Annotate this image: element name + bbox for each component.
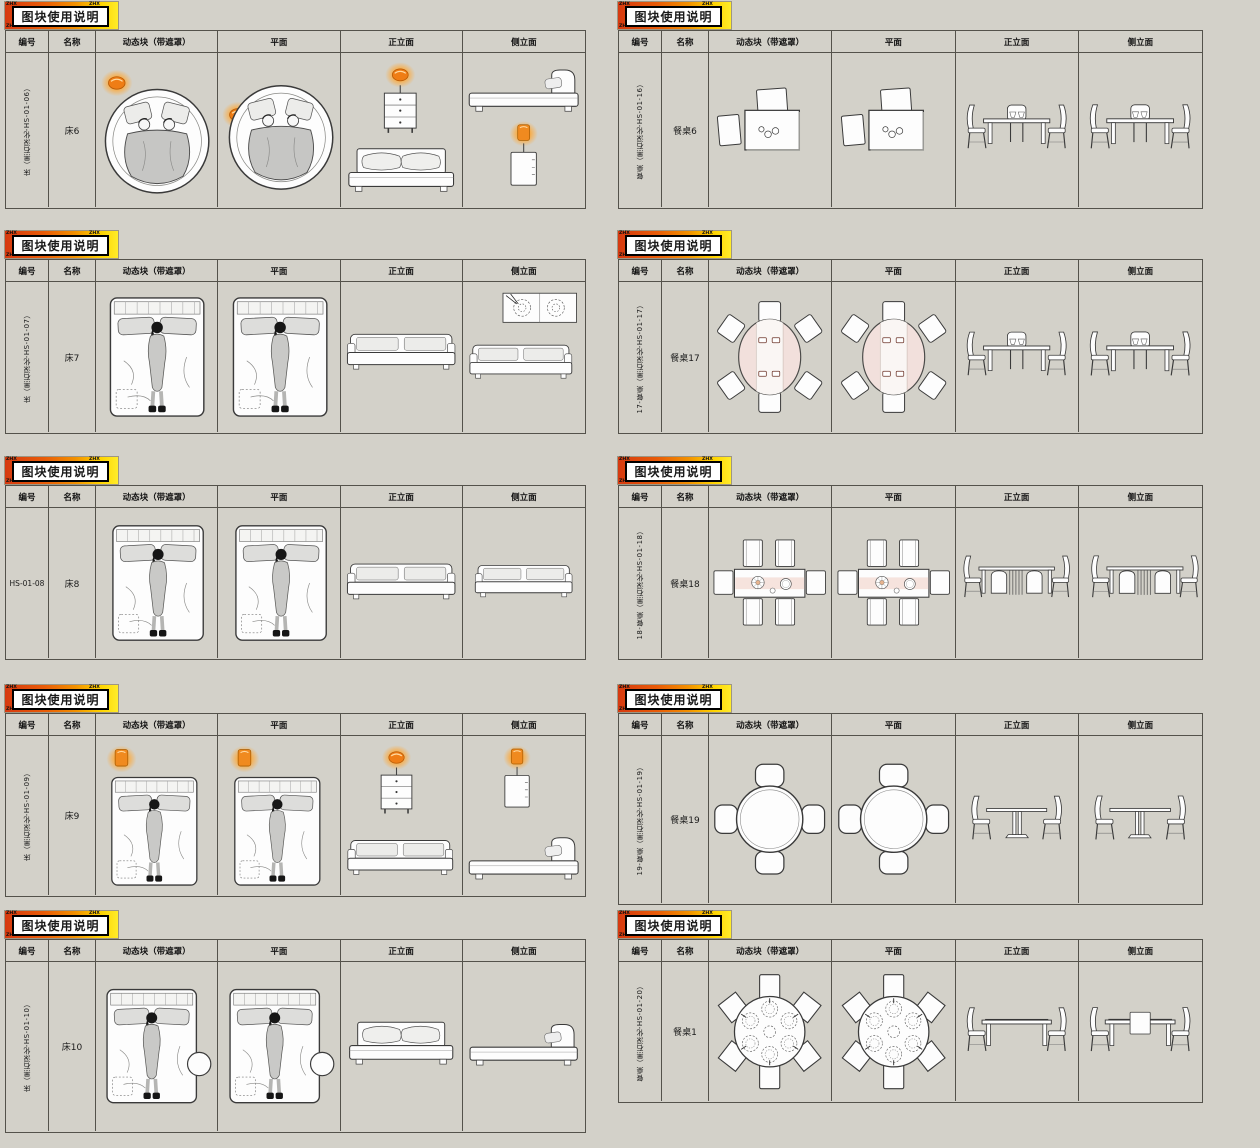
code-cell: HS-01-08: [6, 508, 49, 658]
col-header-code: 编号: [6, 714, 49, 735]
code-cell: 床（黑石深化-HS-01-06）: [6, 53, 49, 207]
section-banner: ZHXZHXZHXZHX 图块使用说明: [618, 2, 731, 29]
table17-dynamic-block-drawing: [709, 282, 832, 432]
bed7-plan-drawing: [218, 282, 340, 432]
code-cell: 餐桌（黑石深化-HS-01-20）: [619, 962, 662, 1101]
code-cell: 18-餐桌（黑石深化-HS-01-18）: [619, 508, 662, 658]
table6-front-elevation-drawing: [956, 53, 1079, 207]
col-header-code: 编号: [619, 260, 662, 281]
name-cell: 餐桌6: [662, 53, 709, 207]
col-header-side-elevation: 侧立面: [1079, 260, 1202, 281]
bed8-plan-drawing: [218, 508, 340, 658]
bed6-front-elevation-drawing: [341, 53, 463, 207]
lamp-icon: [504, 746, 531, 808]
bed10-plan-drawing: [218, 962, 340, 1131]
col-header-code: 编号: [6, 940, 49, 961]
col-header-plan: 平面: [218, 940, 340, 961]
col-header-code: 编号: [619, 940, 662, 961]
col-header-name: 名称: [662, 940, 709, 961]
nightstand-lamp-icon: [381, 745, 412, 813]
table19-plan-drawing: [832, 736, 955, 903]
col-header-front-elevation: 正立面: [956, 260, 1079, 281]
section-banner: ZHXZHXZHXZHX 图块使用说明: [5, 457, 118, 484]
panel-table19: ZHXZHXZHXZHX 图块使用说明 编号 名称 动态块（带遮罩） 平面 正立…: [618, 685, 1203, 905]
col-header-code: 编号: [619, 486, 662, 507]
col-header-name: 名称: [49, 260, 96, 281]
table1-plan-drawing: [832, 962, 955, 1101]
col-header-side-elevation: 侧立面: [463, 486, 585, 507]
table6-side-elevation-drawing: [1079, 53, 1202, 207]
code-cell: 餐桌（黑石深化-HS-01-16）: [619, 53, 662, 207]
col-header-front-elevation: 正立面: [341, 486, 463, 507]
col-header-name: 名称: [662, 260, 709, 281]
section-title: 图块使用说明: [625, 6, 722, 27]
name-cell: 床9: [49, 736, 96, 895]
name-cell: 餐桌18: [662, 508, 709, 658]
col-header-plan: 平面: [218, 714, 340, 735]
table18-plan-drawing: [832, 508, 955, 658]
panel-table6: ZHXZHXZHXZHX 图块使用说明 编号 名称 动态块（带遮罩） 平面 正立…: [618, 2, 1203, 209]
section-title: 图块使用说明: [12, 6, 109, 27]
section-banner: ZHXZHXZHXZHX 图块使用说明: [5, 2, 118, 29]
code-cell: 17-餐桌（黑石深化-HS-01-17）: [619, 282, 662, 432]
lamp-icon: [107, 746, 137, 773]
name-cell: 床7: [49, 282, 96, 432]
lamp-icon: [229, 746, 259, 773]
col-header-front-elevation: 正立面: [956, 714, 1079, 735]
panel-bed6: ZHXZHXZHXZHX 图块使用说明 编号 名称 动态块（带遮罩） 平面 正立…: [5, 2, 586, 209]
bed6-plan-drawing: [218, 53, 340, 207]
table6-dynamic-block-drawing: [709, 53, 832, 207]
section-title: 图块使用说明: [625, 915, 722, 936]
col-header-dynamic-block: 动态块（带遮罩）: [709, 486, 832, 507]
lamp-icon: [101, 70, 132, 97]
col-header-plan: 平面: [218, 486, 340, 507]
col-header-side-elevation: 侧立面: [1079, 940, 1202, 961]
col-header-dynamic-block: 动态块（带遮罩）: [96, 940, 218, 961]
section-title: 图块使用说明: [625, 461, 722, 482]
col-header-name: 名称: [662, 714, 709, 735]
col-header-plan: 平面: [832, 260, 955, 281]
col-header-side-elevation: 侧立面: [463, 940, 585, 961]
bed10-side-elevation-drawing: [463, 962, 585, 1131]
panel-bed9: ZHXZHXZHXZHX 图块使用说明 编号 名称 动态块（带遮罩） 平面 正立…: [5, 685, 586, 897]
col-header-plan: 平面: [218, 260, 340, 281]
section-banner: ZHXZHXZHXZHX 图块使用说明: [5, 231, 118, 258]
col-header-front-elevation: 正立面: [956, 486, 1079, 507]
nightstand-lamp-icon: [384, 62, 416, 133]
bed8-dynamic-block-drawing: [96, 508, 218, 658]
col-header-plan: 平面: [832, 486, 955, 507]
col-header-plan: 平面: [832, 31, 955, 52]
name-cell: 餐桌17: [662, 282, 709, 432]
bed6-side-elevation-drawing: [463, 53, 585, 207]
col-header-front-elevation: 正立面: [341, 260, 463, 281]
section-banner: ZHXZHXZHXZHX 图块使用说明: [618, 457, 731, 484]
col-header-dynamic-block: 动态块（带遮罩）: [96, 260, 218, 281]
col-header-side-elevation: 侧立面: [1079, 31, 1202, 52]
table1-dynamic-block-drawing: [709, 962, 832, 1101]
bed9-plan-drawing: [218, 736, 340, 895]
table17-front-elevation-drawing: [956, 282, 1079, 432]
col-header-front-elevation: 正立面: [341, 714, 463, 735]
table19-side-elevation-drawing: [1079, 736, 1202, 903]
col-header-side-elevation: 侧立面: [463, 714, 585, 735]
col-header-name: 名称: [49, 31, 96, 52]
section-title: 图块使用说明: [12, 461, 109, 482]
bed8-side-elevation-drawing: [463, 508, 585, 658]
col-header-dynamic-block: 动态块（带遮罩）: [709, 714, 832, 735]
col-header-side-elevation: 侧立面: [1079, 714, 1202, 735]
col-header-plan: 平面: [832, 940, 955, 961]
section-banner: ZHXZHXZHXZHX 图块使用说明: [618, 685, 731, 712]
col-header-code: 编号: [6, 260, 49, 281]
col-header-front-elevation: 正立面: [956, 31, 1079, 52]
bed9-front-elevation-drawing: [341, 736, 463, 895]
section-title: 图块使用说明: [625, 235, 722, 256]
table6-plan-drawing: [832, 53, 955, 207]
name-cell: 餐桌19: [662, 736, 709, 903]
table18-front-elevation-drawing: [956, 508, 1079, 658]
code-cell: 床（黑石深化-HS-01-10）: [6, 962, 49, 1131]
col-header-name: 名称: [49, 486, 96, 507]
col-header-code: 编号: [6, 486, 49, 507]
section-title: 图块使用说明: [12, 915, 109, 936]
table1-side-elevation-drawing: [1079, 962, 1202, 1101]
col-header-dynamic-block: 动态块（带遮罩）: [709, 260, 832, 281]
bed9-side-elevation-drawing: [463, 736, 585, 895]
col-header-front-elevation: 正立面: [956, 940, 1079, 961]
section-banner: ZHXZHXZHXZHX 图块使用说明: [5, 685, 118, 712]
name-cell: 床8: [49, 508, 96, 658]
section-title: 图块使用说明: [12, 235, 109, 256]
table19-dynamic-block-drawing: [709, 736, 832, 903]
bed8-front-elevation-drawing: [341, 508, 463, 658]
code-cell: 床（黑石深化-HS-01-07）: [6, 282, 49, 432]
section-banner: ZHXZHXZHXZHX 图块使用说明: [5, 911, 118, 938]
panel-table17: ZHXZHXZHXZHX 图块使用说明 编号 名称 动态块（带遮罩） 平面 正立…: [618, 231, 1203, 434]
col-header-dynamic-block: 动态块（带遮罩）: [709, 31, 832, 52]
code-cell: 床（黑石深化-HS-01-09）: [6, 736, 49, 895]
col-header-side-elevation: 侧立面: [463, 31, 585, 52]
bed9-dynamic-block-drawing: [96, 736, 218, 895]
col-header-side-elevation: 侧立面: [1079, 486, 1202, 507]
lamp-icon: [510, 121, 538, 185]
table17-side-elevation-drawing: [1079, 282, 1202, 432]
col-header-name: 名称: [49, 940, 96, 961]
section-banner: ZHXZHXZHXZHX 图块使用说明: [618, 911, 731, 938]
col-header-dynamic-block: 动态块（带遮罩）: [96, 714, 218, 735]
panel-bed8: ZHXZHXZHXZHX 图块使用说明 编号 名称 动态块（带遮罩） 平面 正立…: [5, 457, 586, 660]
bed6-dynamic-block-drawing: [96, 53, 218, 207]
code-cell: 19-餐桌（黑石深化-HS-01-19）: [619, 736, 662, 903]
table1-front-elevation-drawing: [956, 962, 1079, 1101]
col-header-plan: 平面: [832, 714, 955, 735]
name-cell: 床6: [49, 53, 96, 207]
col-header-dynamic-block: 动态块（带遮罩）: [709, 940, 832, 961]
table17-plan-drawing: [832, 282, 955, 432]
col-header-front-elevation: 正立面: [341, 31, 463, 52]
panel-table18: ZHXZHXZHXZHX 图块使用说明 编号 名称 动态块（带遮罩） 平面 正立…: [618, 457, 1203, 660]
panel-bed7: ZHXZHXZHXZHX 图块使用说明 编号 名称 动态块（带遮罩） 平面 正立…: [5, 231, 586, 434]
bed10-dynamic-block-drawing: [96, 962, 218, 1131]
col-header-code: 编号: [6, 31, 49, 52]
table18-dynamic-block-drawing: [709, 508, 832, 658]
col-header-front-elevation: 正立面: [341, 940, 463, 961]
table19-front-elevation-drawing: [956, 736, 1079, 903]
table18-side-elevation-drawing: [1079, 508, 1202, 658]
bed7-side-elevation-drawing: [463, 282, 585, 432]
col-header-code: 编号: [619, 31, 662, 52]
col-header-name: 名称: [662, 31, 709, 52]
col-header-name: 名称: [662, 486, 709, 507]
panel-table1: ZHXZHXZHXZHX 图块使用说明 编号 名称 动态块（带遮罩） 平面 正立…: [618, 911, 1203, 1103]
col-header-side-elevation: 侧立面: [463, 260, 585, 281]
col-header-name: 名称: [49, 714, 96, 735]
bed7-dynamic-block-drawing: [96, 282, 218, 432]
col-header-dynamic-block: 动态块（带遮罩）: [96, 486, 218, 507]
bed7-front-elevation-drawing: [341, 282, 463, 432]
name-cell: 餐桌1: [662, 962, 709, 1101]
col-header-plan: 平面: [218, 31, 340, 52]
col-header-code: 编号: [619, 714, 662, 735]
name-cell: 床10: [49, 962, 96, 1131]
panel-bed10: ZHXZHXZHXZHX 图块使用说明 编号 名称 动态块（带遮罩） 平面 正立…: [5, 911, 586, 1133]
section-banner: ZHXZHXZHXZHX 图块使用说明: [618, 231, 731, 258]
section-title: 图块使用说明: [12, 689, 109, 710]
section-title: 图块使用说明: [625, 689, 722, 710]
col-header-dynamic-block: 动态块（带遮罩）: [96, 31, 218, 52]
bed10-front-elevation-drawing: [341, 962, 463, 1131]
